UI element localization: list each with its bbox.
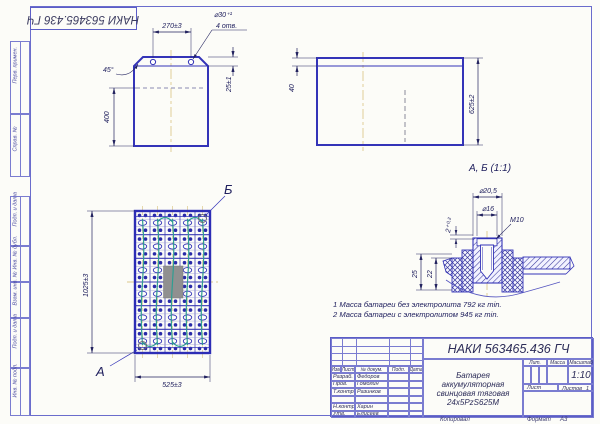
tb-label-mass: Масса — [547, 359, 568, 366]
cell-terminal — [159, 285, 163, 289]
dim-grid-height: 1025±3 — [83, 274, 90, 297]
tb-scale-value: 1:10 — [568, 366, 594, 384]
cell-terminal — [189, 299, 193, 303]
cell-terminal — [204, 332, 208, 336]
cell-terminal — [144, 276, 148, 280]
tb-header-list: Лист — [341, 366, 355, 373]
vent-plug — [153, 268, 161, 273]
tb-company-cell — [523, 391, 594, 418]
vent-plug — [198, 315, 206, 320]
cell-terminal — [168, 252, 172, 256]
cell-terminal — [189, 285, 193, 289]
cell-terminal — [174, 299, 178, 303]
note-line-2: 2 Масса батареи с электролитом 945 кг mi… — [332, 310, 499, 319]
tb-header-date: Дата — [409, 366, 423, 373]
notes: 1 Масса батареи без электролита 792 кг m… — [332, 300, 502, 319]
cell-terminal — [204, 285, 208, 289]
cell-terminal — [159, 237, 163, 241]
cell-terminal — [159, 276, 163, 280]
tb-label-lit: Лит. — [523, 359, 547, 366]
tb-sig-name — [355, 396, 388, 404]
mount-hole — [188, 59, 193, 64]
cell-terminal — [174, 308, 178, 312]
tb-sig-date — [409, 381, 423, 389]
cell-terminal — [204, 237, 208, 241]
cell-terminal — [144, 332, 148, 336]
title-block: Изм Лист № докум. Подп. Дата Разраб. Фед… — [330, 337, 593, 417]
cell-terminal — [189, 332, 193, 336]
dim-thread: М10 — [510, 217, 524, 224]
cell-terminal — [189, 228, 193, 232]
tb-sig-role: Разраб. — [331, 373, 355, 381]
change-table — [331, 338, 423, 366]
cell-terminal — [168, 237, 172, 241]
dim-hole-count: 4 отв. — [216, 23, 237, 30]
cell-terminal — [183, 323, 187, 327]
vent-plug — [183, 291, 191, 296]
dim-holes-span: 270±3 — [161, 23, 182, 30]
cell-terminal — [153, 228, 157, 232]
cell-terminal — [138, 285, 142, 289]
cell-terminal — [168, 299, 172, 303]
vent-plug — [138, 291, 146, 296]
cell-terminal — [174, 237, 178, 241]
cell-terminal — [168, 323, 172, 327]
tb-sig-role: Пров. — [331, 381, 355, 389]
cell-terminal — [153, 252, 157, 256]
cell-terminal — [159, 308, 163, 312]
cell-terminal — [198, 332, 202, 336]
vent-plug — [198, 244, 206, 249]
tb-sig-name: Федоров — [355, 373, 388, 381]
cell-terminal — [183, 252, 187, 256]
tb-sig-signature — [388, 403, 409, 411]
copy-label: Копировал — [440, 417, 470, 423]
tb-sig-name: Разинков — [355, 388, 388, 396]
dim-d1: ⌀20,5 — [479, 188, 497, 195]
tb-header-izm: Изм — [331, 366, 341, 373]
cell-terminal — [159, 261, 163, 265]
view-label-b: Б — [224, 182, 233, 197]
cell-terminal — [159, 228, 163, 232]
cell-terminal — [198, 276, 202, 280]
vent-plug — [198, 268, 206, 273]
cell-terminal — [144, 285, 148, 289]
tb-header-sign: Подп. — [388, 366, 409, 373]
cell-terminal — [174, 332, 178, 336]
tb-mass-value — [547, 366, 568, 384]
side-view: 40 625±2 — [289, 48, 483, 151]
tb-sig-date — [409, 396, 423, 404]
format-value: А3 — [560, 417, 567, 423]
cell-terminal — [174, 228, 178, 232]
detail-view: А, Б (1:1) ⌀20,5 — [412, 163, 574, 297]
product-line-2: свинцовая тяговая — [424, 389, 522, 398]
vent-plug — [153, 291, 161, 296]
tb-sig-date — [409, 373, 423, 381]
vent-plug — [168, 244, 176, 249]
cell-terminal — [153, 285, 157, 289]
cell-terminal — [153, 237, 157, 241]
detail-title: А, Б (1:1) — [468, 163, 511, 174]
tb-sig-name: Харин — [355, 403, 388, 411]
cell-terminal — [183, 332, 187, 336]
view-label-a: А — [95, 364, 105, 379]
cell-terminal — [144, 308, 148, 312]
tb-lit-cell-1 — [523, 366, 531, 384]
drawing-sheet: Перв. примен. Справ. № Подп. и дата Инв.… — [0, 0, 600, 424]
cell-terminal — [189, 261, 193, 265]
cell-terminal — [144, 299, 148, 303]
cell-terminal — [198, 252, 202, 256]
cell-terminal — [144, 228, 148, 232]
cell-terminal — [138, 332, 142, 336]
tb-sig-role: Н.контр. — [331, 403, 355, 411]
dim-chamfer: 45° — [103, 66, 114, 74]
top-view: Б А 1025±3 525±3 — [83, 182, 233, 389]
cell-terminal — [153, 299, 157, 303]
product-line-3: 24x5PzS625M — [424, 398, 522, 407]
dim-h2: 22 — [427, 270, 434, 279]
tb-sig-signature — [388, 381, 409, 389]
dim-lip: 40 — [289, 84, 296, 92]
note-line-1: 1 Масса батареи без электролита 792 кг m… — [333, 300, 502, 309]
dim-step: 2⁺⁰·² — [444, 216, 455, 234]
dim-height: 625±2 — [469, 94, 476, 114]
vent-plug — [198, 291, 206, 296]
cell-terminal — [144, 323, 148, 327]
cell-terminal — [159, 332, 163, 336]
cell-terminal — [204, 323, 208, 327]
cell-terminal — [198, 228, 202, 232]
vent-plug — [183, 315, 191, 320]
tb-doc-number: НАКИ 563465.436 ГЧ — [423, 338, 594, 359]
dim-d2: ⌀16 — [482, 206, 494, 213]
cell-terminal — [198, 237, 202, 241]
vent-plug — [153, 244, 161, 249]
dim-grid-width: 525±3 — [162, 382, 182, 389]
cell-terminal — [138, 299, 142, 303]
cell-terminal — [138, 261, 142, 265]
cell-terminal — [138, 323, 142, 327]
front-view: 270±3 ⌀30⁺¹ 4 отв. 45° 25±1 400 — [103, 12, 247, 152]
tb-header-doc: № докум. — [355, 366, 388, 373]
cell-terminal — [183, 228, 187, 232]
tb-label-scale: Масштаб — [568, 359, 594, 366]
tb-sig-signature — [388, 388, 409, 396]
tb-sig-signature — [388, 396, 409, 404]
cell-terminal — [153, 261, 157, 265]
cell-terminal — [168, 332, 172, 336]
cell-terminal — [198, 285, 202, 289]
cell-terminal — [198, 261, 202, 265]
tb-sig-name: Гомолин — [355, 381, 388, 389]
cell-terminal — [138, 228, 142, 232]
below-frame-strip: Копировал Формат А3 — [0, 417, 600, 424]
vent-plug — [138, 315, 146, 320]
cell-terminal — [168, 228, 172, 232]
cell-terminal — [189, 308, 193, 312]
cell-terminal — [153, 323, 157, 327]
cell-terminal — [144, 261, 148, 265]
vent-plug — [138, 244, 146, 249]
tb-sig-role: Т.контр. — [331, 388, 355, 396]
cell-terminal — [183, 237, 187, 241]
cell-terminal — [204, 276, 208, 280]
cell-terminal — [159, 323, 163, 327]
cell-terminal — [138, 252, 142, 256]
cell-terminal — [189, 276, 193, 280]
cell-terminal — [198, 299, 202, 303]
dim-top-offset: 25±1 — [226, 76, 233, 93]
cell-terminal — [144, 237, 148, 241]
vent-plug — [183, 244, 191, 249]
format-label: Формат — [527, 417, 551, 423]
tb-sig-signature — [388, 373, 409, 381]
cell-terminal — [198, 323, 202, 327]
tb-lit-cell-3 — [539, 366, 547, 384]
cell-terminal — [204, 299, 208, 303]
cell-terminal — [204, 308, 208, 312]
tb-lit-cell-2 — [531, 366, 539, 384]
dim-h1: 25 — [412, 270, 419, 279]
vent-plug — [138, 268, 146, 273]
vent-plug — [183, 268, 191, 273]
tb-sig-role — [331, 396, 355, 404]
product-line-1: Батарея аккумуляторная — [424, 371, 522, 389]
cell-terminal — [153, 276, 157, 280]
cell-terminal — [138, 276, 142, 280]
cell-terminal — [189, 237, 193, 241]
cell-terminal — [183, 261, 187, 265]
tb-sig-date — [409, 388, 423, 396]
cell-terminal — [189, 323, 193, 327]
vent-plug — [153, 315, 161, 320]
cell-terminal — [153, 332, 157, 336]
tb-sig-date — [409, 403, 423, 411]
mount-hole — [150, 59, 155, 64]
cell-terminal — [204, 228, 208, 232]
tb-label-sheet: Лист — [523, 384, 558, 391]
tb-product-name: Батарея аккумуляторная свинцовая тяговая… — [423, 359, 523, 418]
cell-terminal — [159, 299, 163, 303]
dim-level: 400 — [104, 111, 111, 123]
cell-terminal — [204, 261, 208, 265]
cell-terminal — [183, 299, 187, 303]
dim-hole-dia: ⌀30⁺¹ — [214, 12, 233, 19]
cell-terminal — [168, 261, 172, 265]
vent-plug — [168, 315, 176, 320]
tb-sheets-cell: Листов 1 — [558, 384, 594, 391]
cell-terminal — [138, 237, 142, 241]
cell-terminal — [174, 261, 178, 265]
cell-terminal — [174, 323, 178, 327]
